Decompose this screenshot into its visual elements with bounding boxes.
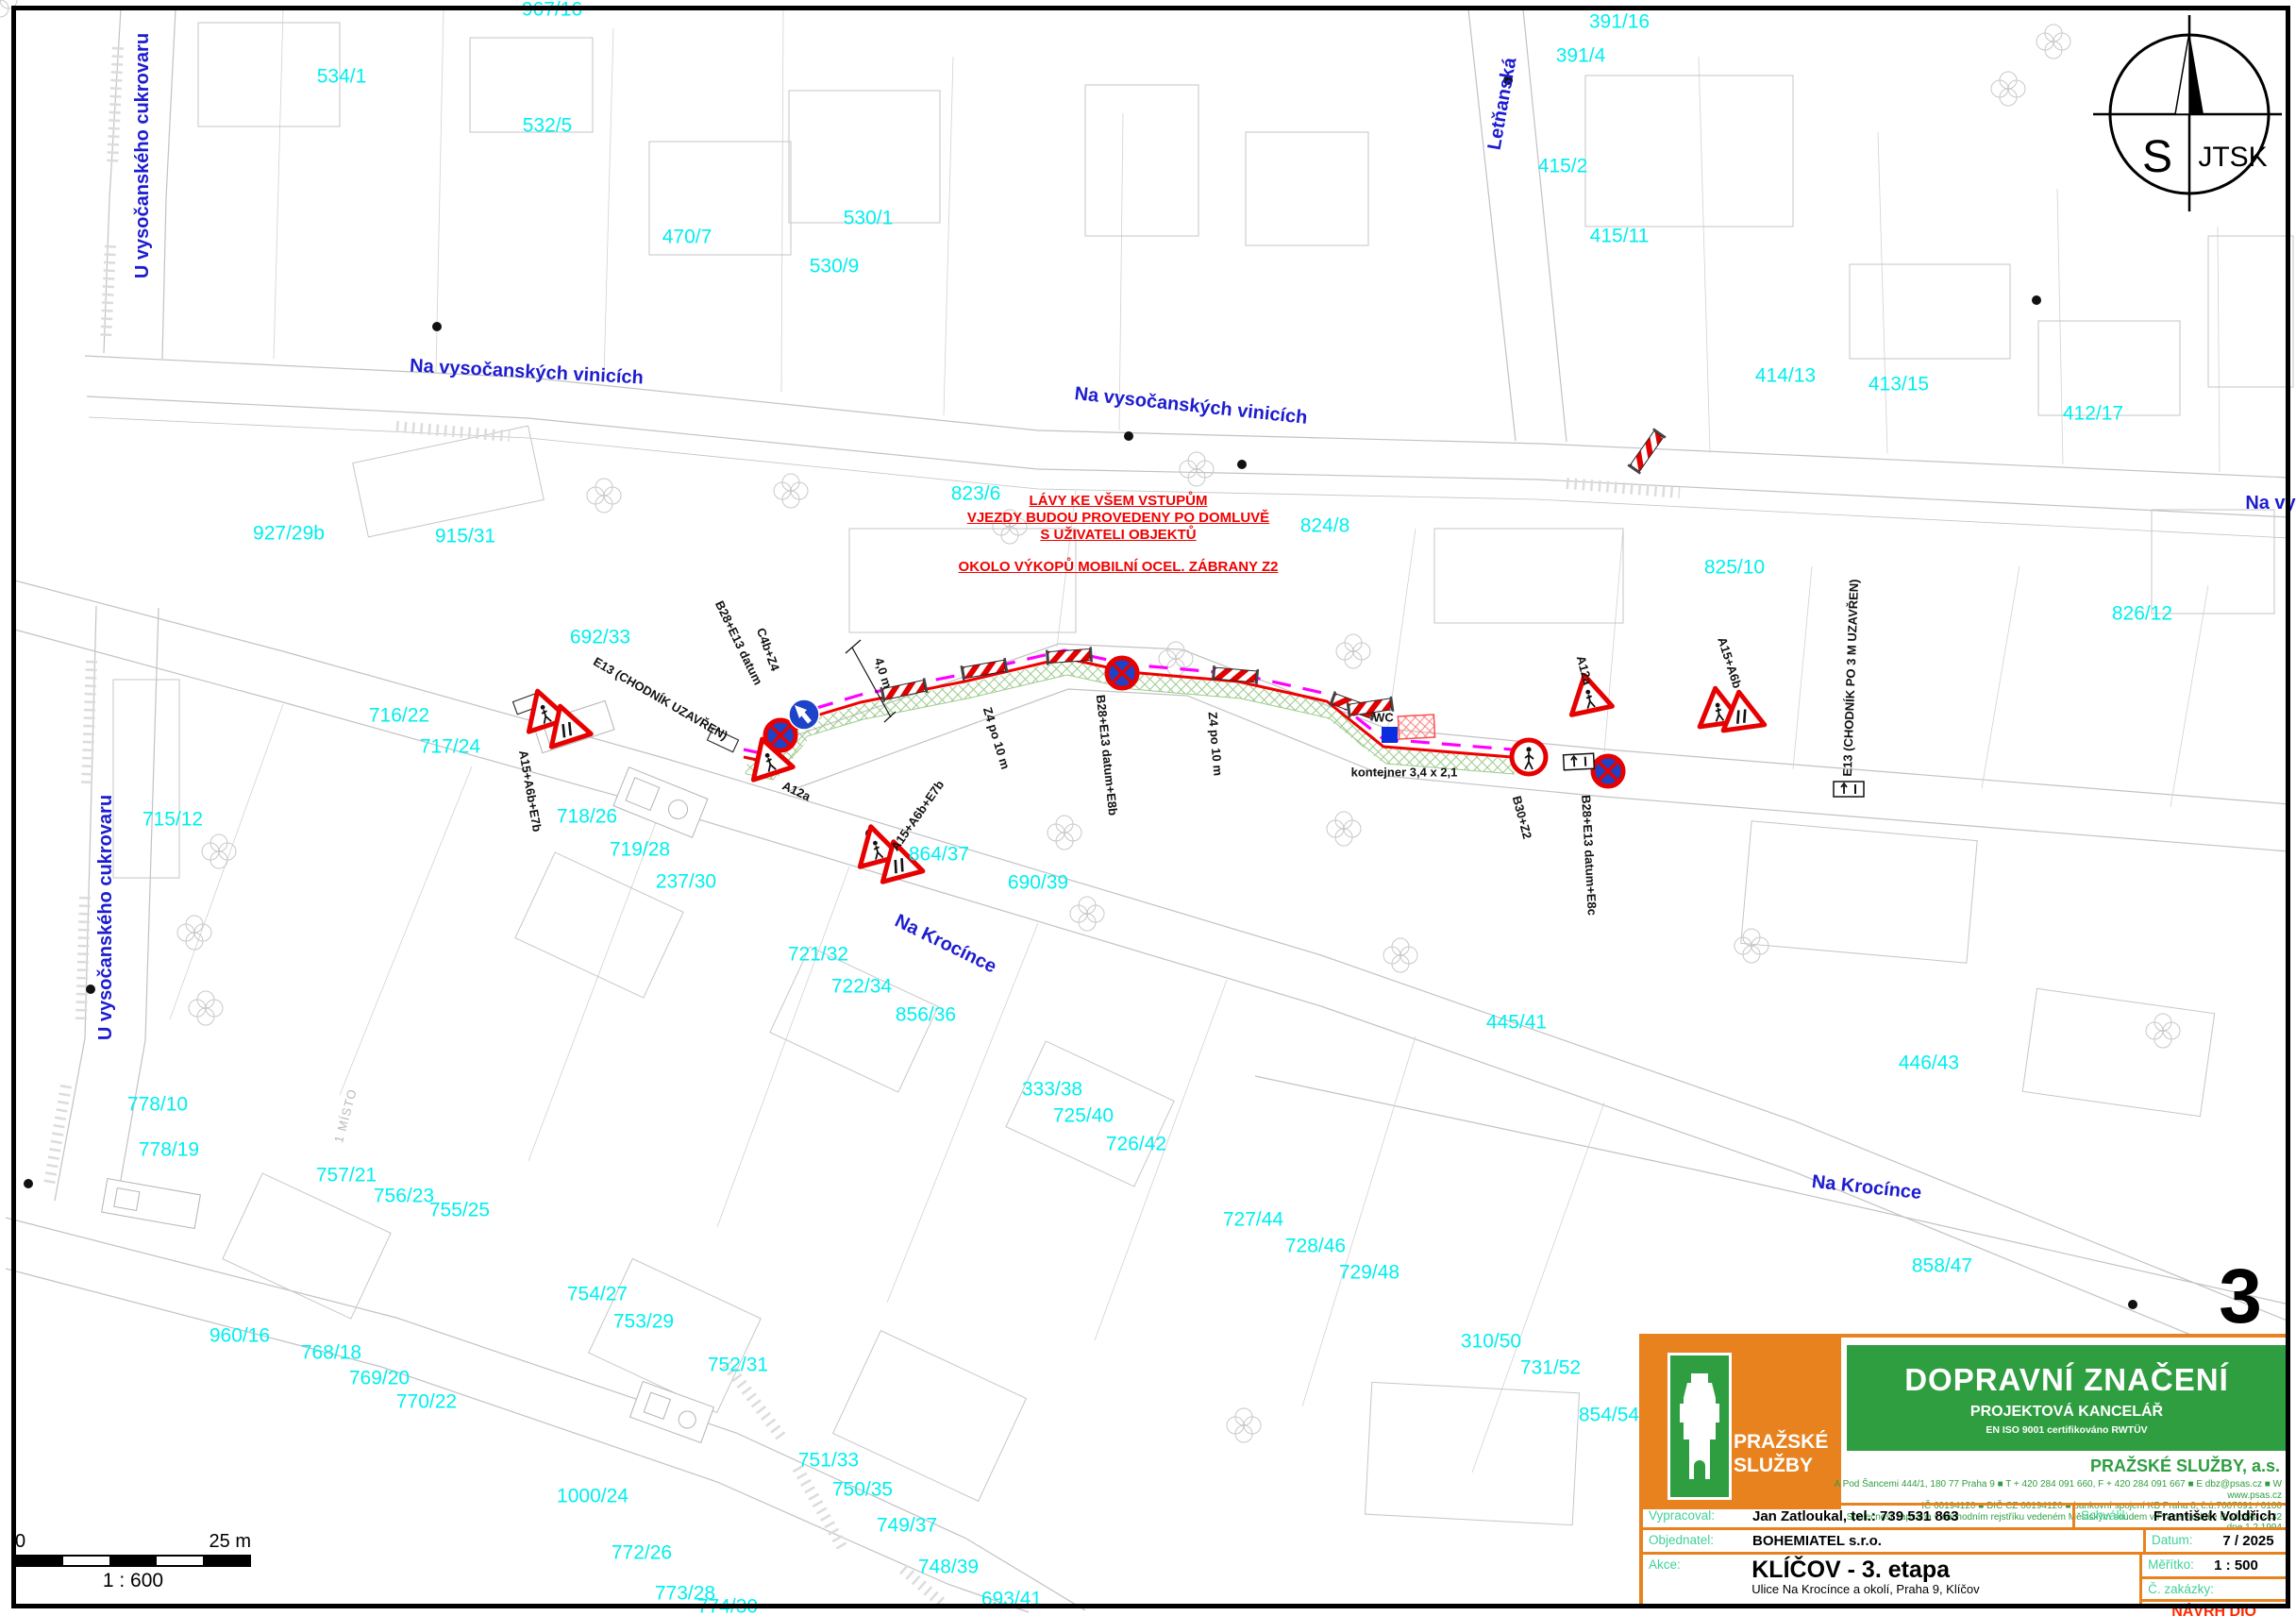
construction-notes: LÁVY KE VŠEM VSTUPŮM VJEZDY BUDOU PROVED…: [959, 493, 1279, 576]
parcel-number-label: 690/39: [1008, 873, 1068, 893]
b28-no-stopping-sign: [1593, 756, 1623, 786]
parcel-number-label: 774/30: [697, 1597, 758, 1616]
parcel-number-label: 854/54: [1579, 1406, 1639, 1425]
akce-subtitle: Ulice Na Krocínce a okolí, Praha 9, Klíč…: [1751, 1582, 2134, 1596]
vypracoval-value: Jan Zatloukal, tel.: 739 531 863: [1747, 1506, 2072, 1527]
parcel-number-label: 333/38: [1022, 1080, 1082, 1100]
scale-bar: 0 25 m 1 : 600: [15, 1531, 251, 1592]
parcel-number-label: 470/7: [662, 227, 712, 247]
note-line: LÁVY KE VŠEM VSTUPŮM: [959, 493, 1279, 510]
vypracoval-label: Vypracoval:: [1643, 1506, 1747, 1527]
parcel-number-label: 753/29: [613, 1312, 674, 1332]
note-line: S UŽIVATELI OBJEKTŮ: [959, 527, 1279, 544]
zakazka-value: [2220, 1579, 2231, 1599]
company-logo: [1668, 1353, 1732, 1500]
street-name-label: U vysočanského cukrovaru: [96, 795, 115, 1040]
scale-ratio: 1 : 600: [15, 1570, 251, 1592]
parcel-number-label: 751/33: [798, 1451, 859, 1471]
parcel-number-label: 826/12: [2112, 604, 2172, 624]
parcel-number-label: 770/22: [396, 1392, 457, 1412]
akce-label: Akce:: [1643, 1555, 1746, 1604]
parcel-number-label: 915/31: [435, 527, 495, 547]
parcel-number-label: 754/27: [567, 1285, 628, 1305]
parcel-number-label: 415/11: [1590, 227, 1650, 246]
header-title: DOPRAVNÍ ZNAČENÍ: [1847, 1362, 2287, 1398]
parcel-number-label: 446/43: [1899, 1053, 1959, 1073]
parcel-number-label: 532/5: [523, 116, 573, 136]
parcel-number-label: 693/41: [981, 1590, 1042, 1609]
street-name-label: Na vy: [2245, 494, 2295, 513]
scale-distance: 25 m: [209, 1531, 251, 1553]
parcel-number-label: 864/37: [909, 845, 969, 865]
parcel-number-label: 717/24: [420, 737, 480, 757]
north-compass: S JTSK: [2093, 13, 2282, 213]
parcel-number-label: 692/33: [570, 628, 630, 648]
parcel-number-label: 310/50: [1461, 1332, 1521, 1352]
parcel-number-label: 778/19: [139, 1140, 199, 1160]
parcel-number-label: 530/9: [810, 257, 860, 277]
akce-title: KLÍČOV - 3. etapa: [1751, 1557, 2134, 1582]
objednatel-label: Objednatel:: [1643, 1530, 1747, 1552]
stamp-navrh-dio: NÁVRH DIO: [2142, 1602, 2286, 1616]
header-banner: DOPRAVNÍ ZNAČENÍ PROJEKTOVÁ KANCELÁŘ EN …: [1847, 1345, 2287, 1451]
parcel-number-label: 768/18: [301, 1343, 361, 1363]
parcel-number-label: 718/26: [557, 807, 617, 827]
north-needle: [2189, 32, 2204, 114]
castle-icon: [1678, 1370, 1721, 1483]
parcel-number-label: 722/34: [831, 977, 892, 997]
parcel-number-label: 750/35: [832, 1480, 893, 1500]
parcel-number-label: 856/36: [896, 1005, 956, 1025]
meritko-label: Měřítko:: [2142, 1555, 2208, 1576]
scale-bar-graphic: [15, 1555, 251, 1567]
parcel-number-label: 927/29b: [253, 524, 325, 544]
drawing-sheet: 534/1967/16532/5470/7530/1530/9391/16391…: [0, 0, 2296, 1616]
parcel-number-label: 960/16: [209, 1326, 270, 1346]
b28-no-stopping-sign: [765, 720, 796, 750]
sheet-number: 3: [2219, 1253, 2262, 1341]
parcel-number-label: 967/16: [522, 0, 582, 20]
note-line: OKOLO VÝKOPŮ MOBILNÍ OCEL. ZÁBRANY Z2: [959, 559, 1279, 576]
logo-wordmark: PRAŽSKÉ SLUŽBY: [1734, 1430, 1828, 1477]
parcel-number-label: 769/20: [349, 1369, 410, 1389]
parcel-number-label: 445/41: [1486, 1013, 1547, 1033]
datum-value: 7 / 2025: [2211, 1530, 2286, 1552]
datum-label: Datum:: [2143, 1530, 2211, 1552]
parcel-number-label: 1000/24: [557, 1487, 628, 1507]
title-block: PRAŽSKÉ SLUŽBY DOPRAVNÍ ZNAČENÍ PROJEKTO…: [1639, 1334, 2289, 1608]
note-line: VJEZDY BUDOU PROVEDENY PO DOMLUVĚ: [959, 510, 1279, 527]
parcel-number-label: 757/21: [316, 1166, 377, 1186]
parcel-number-label: 728/46: [1285, 1237, 1346, 1256]
schvalil-label: Schválil:: [2072, 1506, 2148, 1527]
parcel-number-label: 825/10: [1704, 558, 1765, 578]
parcel-number-label: 414/13: [1755, 366, 1816, 386]
parcel-number-label: 391/16: [1589, 12, 1650, 32]
schvalil-value: František Voldřich: [2148, 1506, 2286, 1527]
parcel-number-label: 719/28: [610, 840, 670, 860]
south-label: S: [2142, 132, 2172, 182]
kontejner-zone: [1398, 715, 1434, 739]
parcel-number-label: 756/23: [374, 1187, 434, 1206]
parcel-number-label: 237/30: [656, 872, 716, 892]
traffic-sign-label: kontejner 3,4 x 2,1: [1351, 766, 1458, 779]
datum-label: JTSK: [2198, 142, 2267, 173]
parcel-number-label: 530/1: [844, 209, 894, 228]
title-table: Vypracoval: Jan Zatloukal, tel.: 739 531…: [1643, 1503, 2286, 1604]
b30-no-pedestrians-sign: [1512, 740, 1546, 774]
c4b-direction-sign: [789, 699, 819, 730]
parcel-number-label: 858/47: [1912, 1256, 1972, 1276]
traffic-sign-label: WC: [1373, 712, 1394, 724]
company-name: PRAŽSKÉ SLUŽBY, a.s.: [2090, 1456, 2280, 1476]
parcel-number-label: 824/8: [1300, 516, 1350, 536]
e13-arrow-panel: [1564, 753, 1595, 770]
z4-barrier: [1627, 428, 1666, 474]
header-cert: EN ISO 9001 certifikováno RWTÜV: [1847, 1424, 2287, 1436]
parcel-number-label: 749/37: [877, 1516, 937, 1536]
parcel-number-label: 778/10: [127, 1095, 188, 1115]
meritko-value: 1 : 500: [2208, 1555, 2264, 1576]
parcel-number-label: 412/17: [2063, 404, 2123, 424]
parcel-number-label: 726/42: [1106, 1135, 1166, 1154]
parcel-number-label: 391/4: [1556, 46, 1606, 66]
e13-arrow-panel: [1834, 782, 1864, 797]
parcel-number-label: 752/31: [708, 1355, 768, 1375]
parcel-number-label: 755/25: [429, 1201, 490, 1220]
street-name-label: U vysočanského cukrovaru: [133, 33, 152, 278]
scale-zero: 0: [15, 1531, 25, 1553]
parcel-number-label: 772/26: [612, 1543, 672, 1563]
parcel-number-label: 534/1: [317, 67, 367, 87]
objednatel-value: BOHEMIATEL s.r.o.: [1747, 1530, 2143, 1552]
zakazka-label: Č. zakázky:: [2142, 1579, 2220, 1599]
parcel-number-label: 415/2: [1538, 157, 1588, 177]
parcel-number-label: 725/40: [1053, 1106, 1114, 1126]
parcel-number-label: 727/44: [1223, 1210, 1283, 1230]
wc-marker: [1382, 727, 1398, 743]
b28-no-stopping-sign: [1107, 658, 1137, 688]
parcel-number-label: 731/52: [1520, 1358, 1581, 1378]
parcel-number-label: 748/39: [918, 1557, 979, 1577]
parcel-number-label: 729/48: [1339, 1263, 1399, 1283]
parcel-number-label: 413/15: [1869, 375, 1929, 395]
parcel-number-label: 715/12: [142, 810, 203, 830]
parcel-number-label: 716/22: [369, 706, 429, 726]
parcel-number-label: 721/32: [788, 945, 848, 965]
header-subtitle: PROJEKTOVÁ KANCELÁŘ: [1847, 1404, 2287, 1421]
